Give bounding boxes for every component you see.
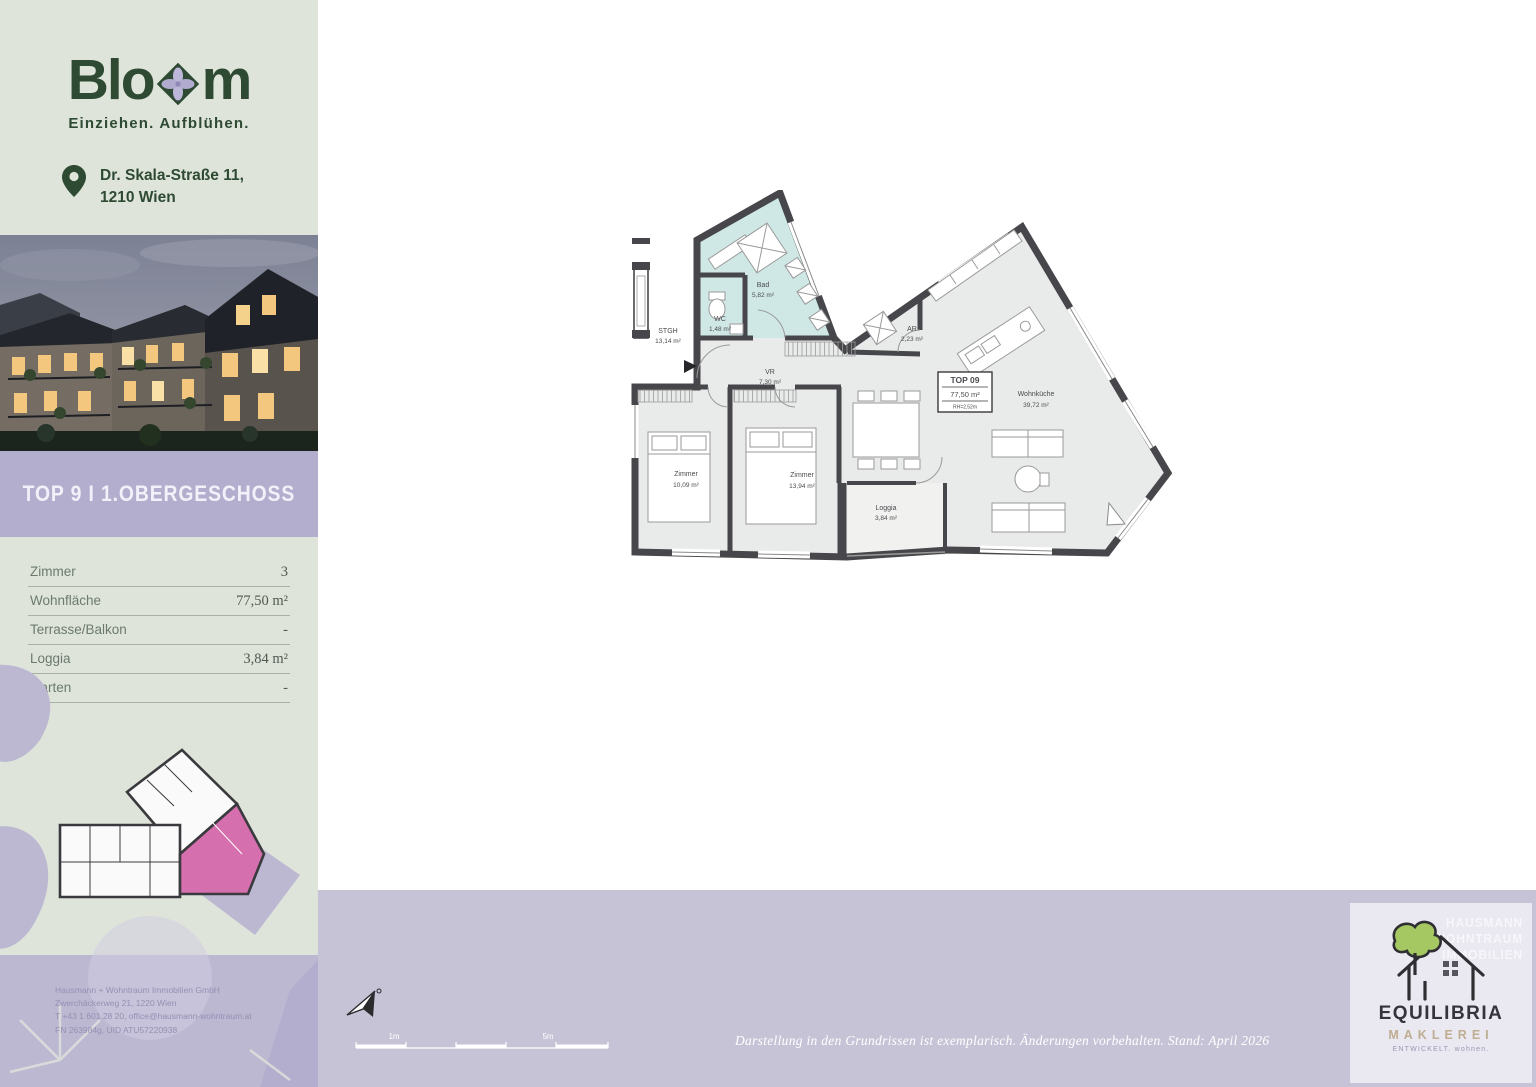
fact-label: Wohnfläche xyxy=(30,593,101,608)
room-name: STGH xyxy=(658,328,677,335)
flower-diamond-icon xyxy=(155,61,201,107)
broker-name: EQUILIBRIA xyxy=(1350,1003,1532,1025)
fact-label: Zimmer xyxy=(30,564,76,579)
building-photo xyxy=(0,235,318,451)
room-area: 5,82 m² xyxy=(752,292,775,299)
broker-house-tree-icon xyxy=(1381,919,1501,1001)
fact-label: Terrasse/Balkon xyxy=(30,622,127,637)
dining-table xyxy=(853,391,920,469)
scale-label-5m: 5m xyxy=(542,1032,553,1041)
room-area: 1,48 m² xyxy=(709,326,732,333)
company-imprint: Hausmann + Wohntraum Immobilien GmbH Zwe… xyxy=(55,984,285,1037)
bloom-logo: Blo m xyxy=(0,52,318,109)
sofa xyxy=(992,430,1063,457)
room-area: 7,30 m² xyxy=(759,379,782,386)
room-area: 13,14 m² xyxy=(655,338,681,345)
north-arrow-icon xyxy=(343,985,385,1027)
room-name: Loggia xyxy=(875,505,896,512)
room-name: Zimmer xyxy=(674,471,698,478)
company-line: FN 263984g, UID ATU57220938 xyxy=(55,1024,285,1037)
sidebar: Blo m Einziehen. Aufblühen. Dr. Sk xyxy=(0,0,318,1087)
company-line: Hausmann + Wohntraum Immobilien GmbH xyxy=(55,984,285,997)
fact-value: - xyxy=(283,622,288,639)
floorplan-top9: TOP 09 77,50 m² RH=2,52m STGH 13,14 m² W… xyxy=(620,190,1180,580)
company-line: Zwerchäckerweg 21, 1220 Wien xyxy=(55,997,285,1010)
sofa xyxy=(992,503,1065,532)
elevator-shaft xyxy=(632,238,650,338)
address-line1: Dr. Skala-Straße 11, xyxy=(100,165,244,187)
disclaimer-text: Darstellung in den Grundrissen ist exemp… xyxy=(735,1033,1269,1049)
address-text: Dr. Skala-Straße 11, 1210 Wien xyxy=(100,165,244,210)
address-block: Dr. Skala-Straße 11, 1210 Wien xyxy=(62,165,244,210)
room-area: 13,94 m² xyxy=(789,483,815,490)
broker-logo-box: HAUSMANN WOHNTRAUM IMMOBILIEN EQUILIBRIA… xyxy=(1350,903,1532,1083)
unit-box-title: TOP 09 xyxy=(951,375,980,385)
logo-text-end: m xyxy=(202,52,251,109)
room-area: 3,84 m² xyxy=(875,515,898,522)
fact-row-terrasse: Terrasse/Balkon - xyxy=(28,616,290,645)
room-name: Bad xyxy=(757,282,770,289)
logo-tagline: Einziehen. Aufblühen. xyxy=(0,115,318,132)
fact-row-zimmer: Zimmer 3 xyxy=(28,558,290,587)
map-pin-icon xyxy=(62,165,86,197)
key-plan-thumbnail xyxy=(52,742,266,914)
unit-box-note: RH=2,52m xyxy=(953,405,977,411)
room-area: 2,23 m² xyxy=(901,336,924,343)
broker-tagline: ENTWICKELT. wohnen. xyxy=(1350,1046,1532,1053)
room-area: 39,72 m² xyxy=(1023,402,1049,409)
brochure-page: Blo m Einziehen. Aufblühen. Dr. Sk xyxy=(0,0,1536,1087)
room-name: WC xyxy=(714,316,726,323)
scale-bar: 1m 5m xyxy=(352,1028,614,1056)
address-line2: 1210 Wien xyxy=(100,187,244,209)
fact-value: 77,50 m² xyxy=(236,593,288,610)
fact-value: 3 xyxy=(281,564,288,581)
unit-title-band: TOP 9 I 1.OBERGESCHOSS xyxy=(0,451,318,537)
room-name: VR xyxy=(765,369,775,376)
company-line: T +43 1 601 28 20, office@hausmann-wohnt… xyxy=(55,1010,285,1023)
room-name: Wohnküche xyxy=(1018,391,1055,398)
fact-row-wohnflaeche: Wohnfläche 77,50 m² xyxy=(28,587,290,616)
unit-title: TOP 9 I 1.OBERGESCHOSS xyxy=(23,481,296,507)
room-name: Zimmer xyxy=(790,472,814,479)
unit-box-area: 77,50 m² xyxy=(950,390,980,399)
room-name: AR xyxy=(907,326,917,333)
unit-info-box: TOP 09 77,50 m² RH=2,52m xyxy=(938,372,992,412)
scale-label-1m: 1m xyxy=(388,1032,399,1041)
logo-text-start: Blo xyxy=(68,52,154,109)
room-area: 10,09 m² xyxy=(673,482,699,489)
broker-division: MAKLEREI xyxy=(1350,1028,1532,1042)
